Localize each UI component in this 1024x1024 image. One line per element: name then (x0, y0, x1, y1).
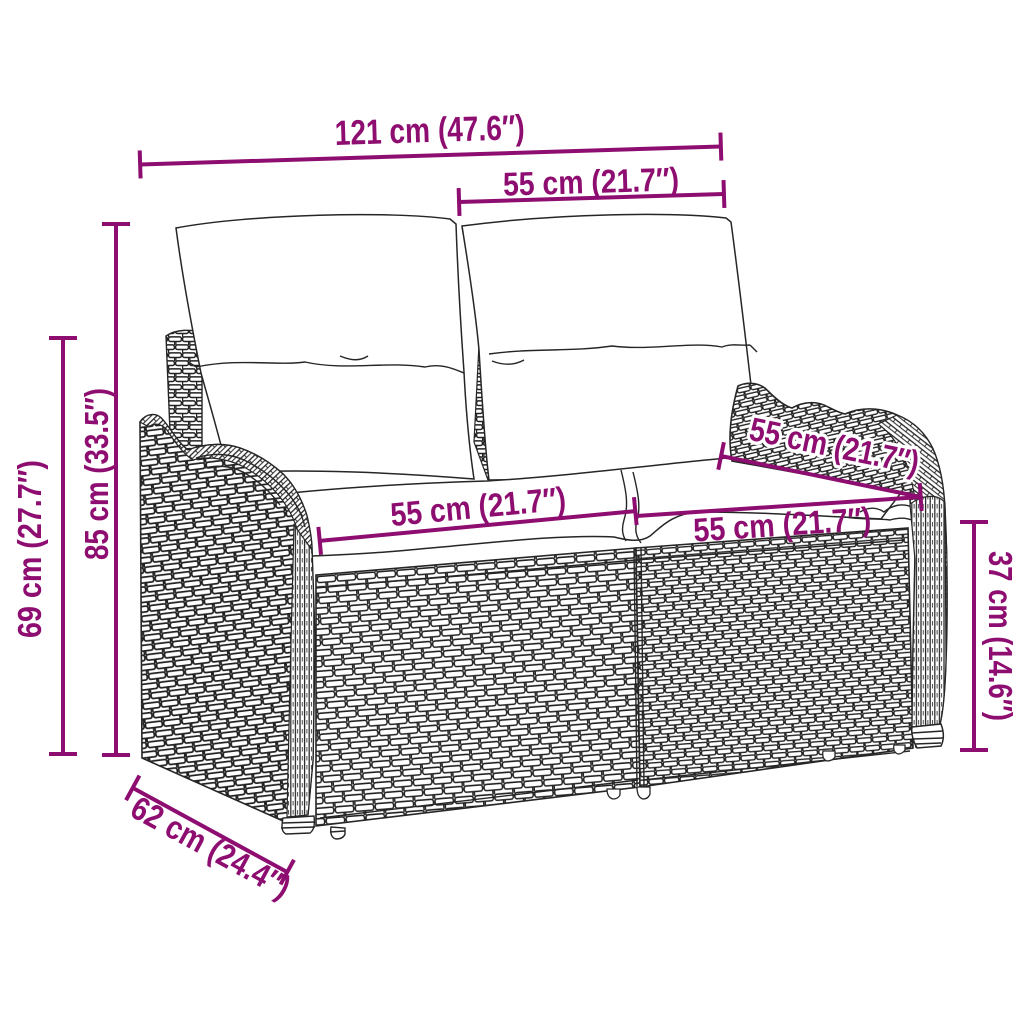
svg-text:69 cm (27.7″): 69 cm (27.7″) (11, 460, 48, 638)
svg-text:55 cm (21.7″): 55 cm (21.7″) (502, 160, 679, 202)
svg-text:85 cm (33.5″): 85 cm (33.5″) (78, 388, 115, 560)
svg-text:37 cm (14.6″): 37 cm (14.6″) (982, 551, 1019, 721)
svg-text:121 cm (47.6″): 121 cm (47.6″) (334, 108, 525, 153)
